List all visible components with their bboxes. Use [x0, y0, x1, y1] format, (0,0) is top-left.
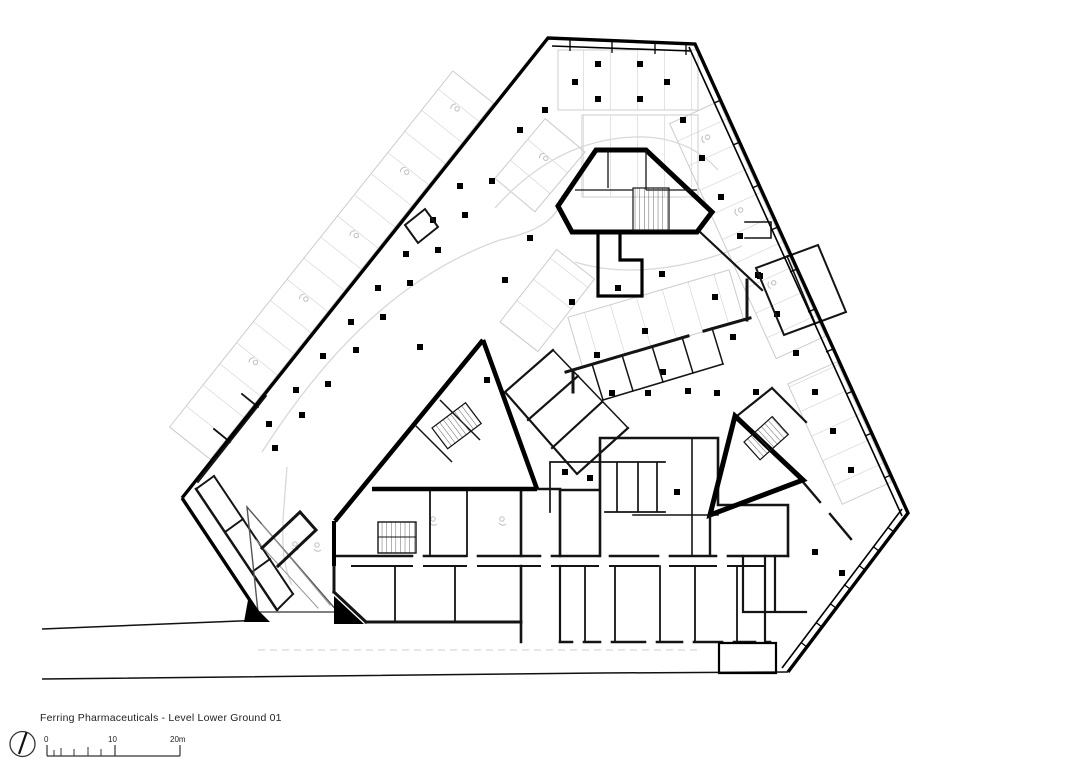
north-arrow-icon: [10, 732, 35, 757]
site-road: [42, 620, 788, 679]
scale-label-10: 10: [108, 735, 117, 744]
floor-plan-sheet: { "title_block": { "title": "Ferring Pha…: [0, 0, 1080, 764]
plan-title: Ferring Pharmaceuticals - Level Lower Gr…: [40, 712, 282, 724]
lower-room-block: [334, 438, 851, 642]
scale-label-20m: 20m: [170, 735, 186, 744]
title-block: Ferring Pharmaceuticals - Level Lower Gr…: [10, 712, 282, 757]
stair-core-left: [334, 340, 537, 566]
scale-label-0: 0: [44, 735, 49, 744]
scale-bar: 0 10 20m: [44, 735, 186, 756]
floor-plan-drawing: Ferring Pharmaceuticals - Level Lower Gr…: [0, 0, 1080, 764]
drive-aisle-markings: [262, 137, 742, 585]
